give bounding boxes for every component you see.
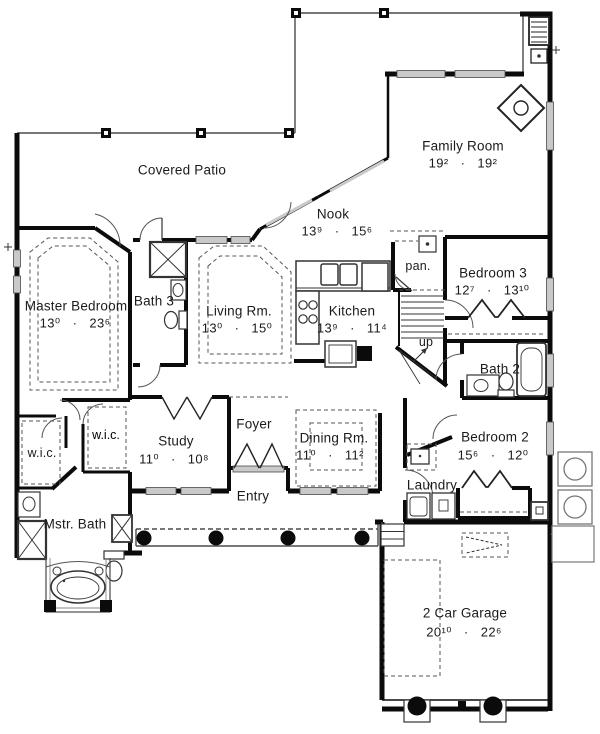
room-label-study: Study xyxy=(158,434,194,448)
garage-stoop xyxy=(552,526,594,562)
bath3-fixtures xyxy=(150,242,187,329)
garden-tub xyxy=(51,571,105,603)
chimney xyxy=(529,17,549,45)
kitchen-sink xyxy=(321,264,338,285)
column xyxy=(357,346,372,361)
room-label-wic-right: w.i.c. xyxy=(92,428,120,442)
room-dims-kitchen: 13⁹ · 11⁴ xyxy=(317,322,387,335)
room-label-garage: 2 Car Garage xyxy=(423,606,507,620)
room-dims-dining-room: 11⁰ · 11² xyxy=(296,449,364,462)
room-label-pantry: pan. xyxy=(405,260,430,273)
room-dims-master-bedroom: 13⁰ · 23⁶ xyxy=(40,317,111,330)
toilet xyxy=(104,551,124,559)
room-label-foyer: Foyer xyxy=(236,417,272,431)
room-label-bath3: Bath 3 xyxy=(134,294,174,308)
bay-post xyxy=(100,600,112,612)
equipment-pad xyxy=(558,452,592,486)
room-dims-family-room: 19² · 19² xyxy=(429,157,498,170)
room-label-master-bedroom: Master Bedroom xyxy=(25,299,128,313)
room-label-nook: Nook xyxy=(317,207,349,221)
room-dims-bedroom3: 12⁷ · 13¹⁰ xyxy=(455,284,530,297)
stairs-up-label: up xyxy=(419,336,433,349)
garage-passage xyxy=(531,502,548,520)
room-dims-living-room: 13⁰ · 15⁰ xyxy=(202,322,273,335)
room-label-entry: Entry xyxy=(237,489,270,503)
room-label-covered-patio: Covered Patio xyxy=(138,163,226,177)
room-label-bedroom3: Bedroom 3 xyxy=(459,266,527,280)
master-bath-fixtures xyxy=(18,492,132,612)
porch-columns xyxy=(137,531,370,546)
equipment-pad xyxy=(558,490,592,524)
room-label-family-room: Family Room xyxy=(422,139,504,153)
room-label-kitchen: Kitchen xyxy=(329,304,375,318)
exterior-right-items xyxy=(552,452,594,562)
corner-fireplace xyxy=(498,85,544,131)
dryer xyxy=(432,493,455,519)
patio-posts xyxy=(101,8,389,138)
room-dims-bedroom2: 15⁶ · 12⁰ xyxy=(458,449,529,462)
room-dims-study: 11⁰ · 10⁸ xyxy=(139,453,209,466)
room-dims-garage: 20¹⁰ · 22⁶ xyxy=(426,626,501,639)
room-label-bedroom2: Bedroom 2 xyxy=(461,430,529,444)
bay-post xyxy=(44,600,56,612)
room-label-bath2: Bath 2 xyxy=(480,362,520,376)
entry-double-doors xyxy=(234,444,283,468)
bedroom2-closet-doors xyxy=(462,471,512,488)
master-tray-ceiling xyxy=(30,238,118,390)
garage-steps xyxy=(381,524,404,546)
room-label-laundry: Laundry xyxy=(407,478,457,492)
toilet xyxy=(498,390,514,397)
garage-details xyxy=(381,524,506,722)
room-dims-nook: 13⁹ · 15⁶ xyxy=(301,225,372,238)
toilet xyxy=(179,311,187,329)
vanity xyxy=(18,492,40,517)
room-label-wic-left: w.i.c. xyxy=(28,447,57,460)
bedroom2-misc xyxy=(531,502,548,520)
kitchen-fixtures xyxy=(296,236,436,367)
room-label-master-bath: Mstr. Bath xyxy=(44,517,107,531)
sink xyxy=(467,375,499,396)
floor-plan: Covered Patio Family Room 19² · 19² Nook… xyxy=(0,0,600,734)
bedroom3-closet-doors xyxy=(468,300,525,318)
room-label-living-room: Living Rm. xyxy=(206,304,272,318)
study-double-doors xyxy=(162,397,212,419)
room-label-dining-room: Dining Rm. xyxy=(300,431,369,445)
refrigerator xyxy=(362,263,388,291)
